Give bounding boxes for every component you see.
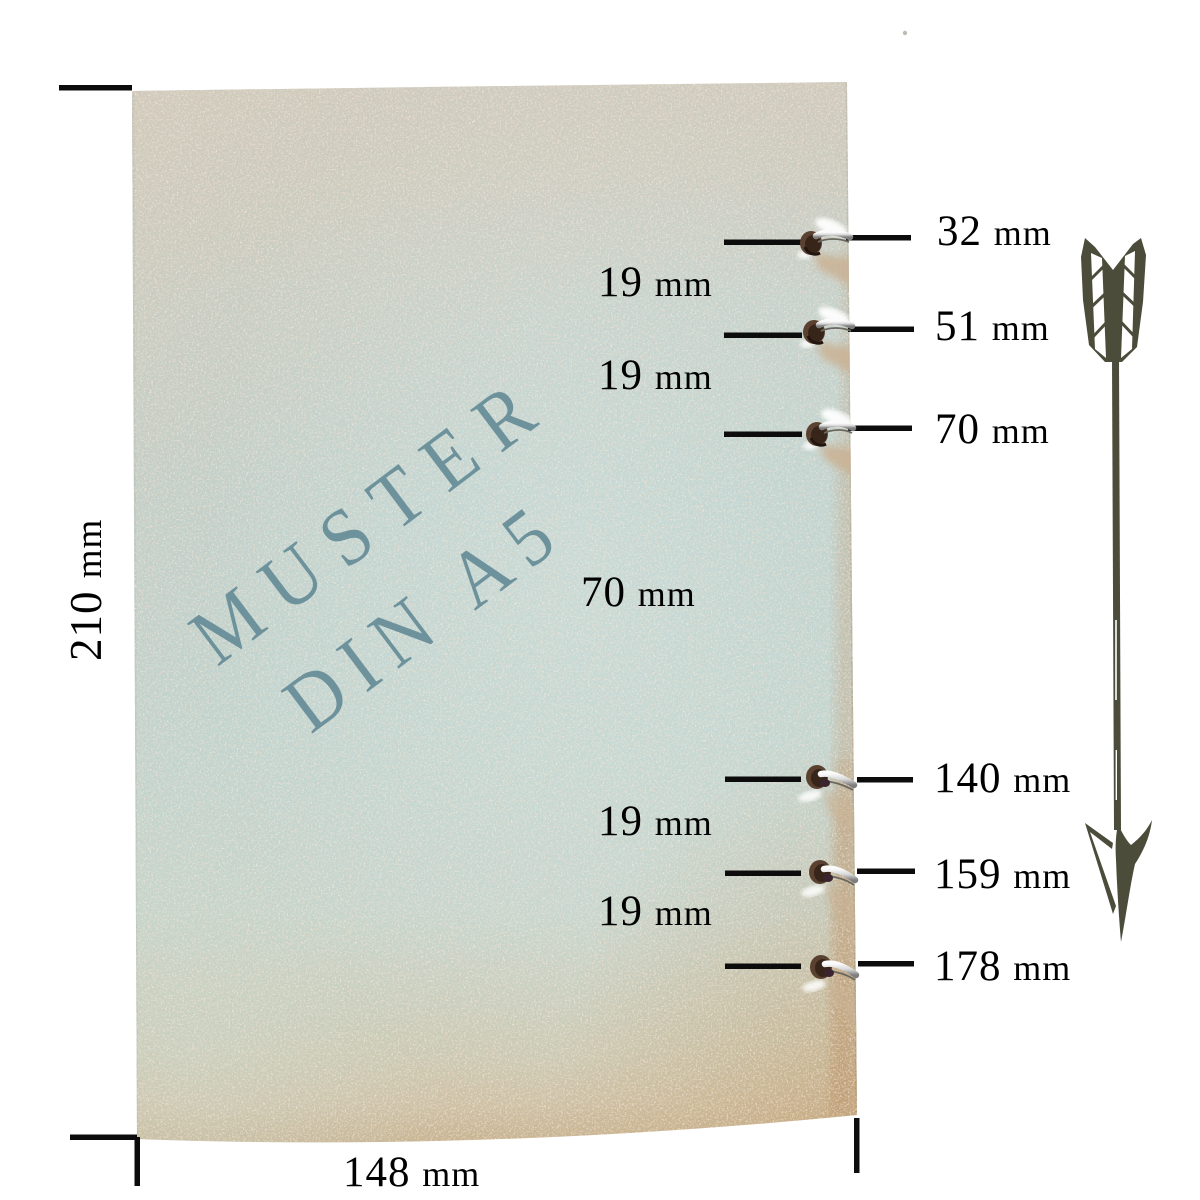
svg-text:140 mm: 140 mm: [934, 755, 1071, 802]
svg-text:51 mm: 51 mm: [935, 303, 1050, 350]
svg-text:178 mm: 178 mm: [934, 943, 1071, 990]
svg-text:70 mm: 70 mm: [581, 569, 696, 616]
svg-text:148 mm: 148 mm: [343, 1149, 480, 1196]
svg-text:159 mm: 159 mm: [934, 851, 1071, 898]
svg-text:70 mm: 70 mm: [935, 406, 1050, 453]
svg-text:210 mm: 210 mm: [61, 519, 111, 661]
svg-text:19 mm: 19 mm: [598, 888, 713, 935]
svg-text:32 mm: 32 mm: [937, 208, 1052, 255]
svg-text:19 mm: 19 mm: [598, 259, 713, 306]
svg-text:19 mm: 19 mm: [598, 352, 713, 399]
svg-text:19 mm: 19 mm: [598, 798, 713, 845]
